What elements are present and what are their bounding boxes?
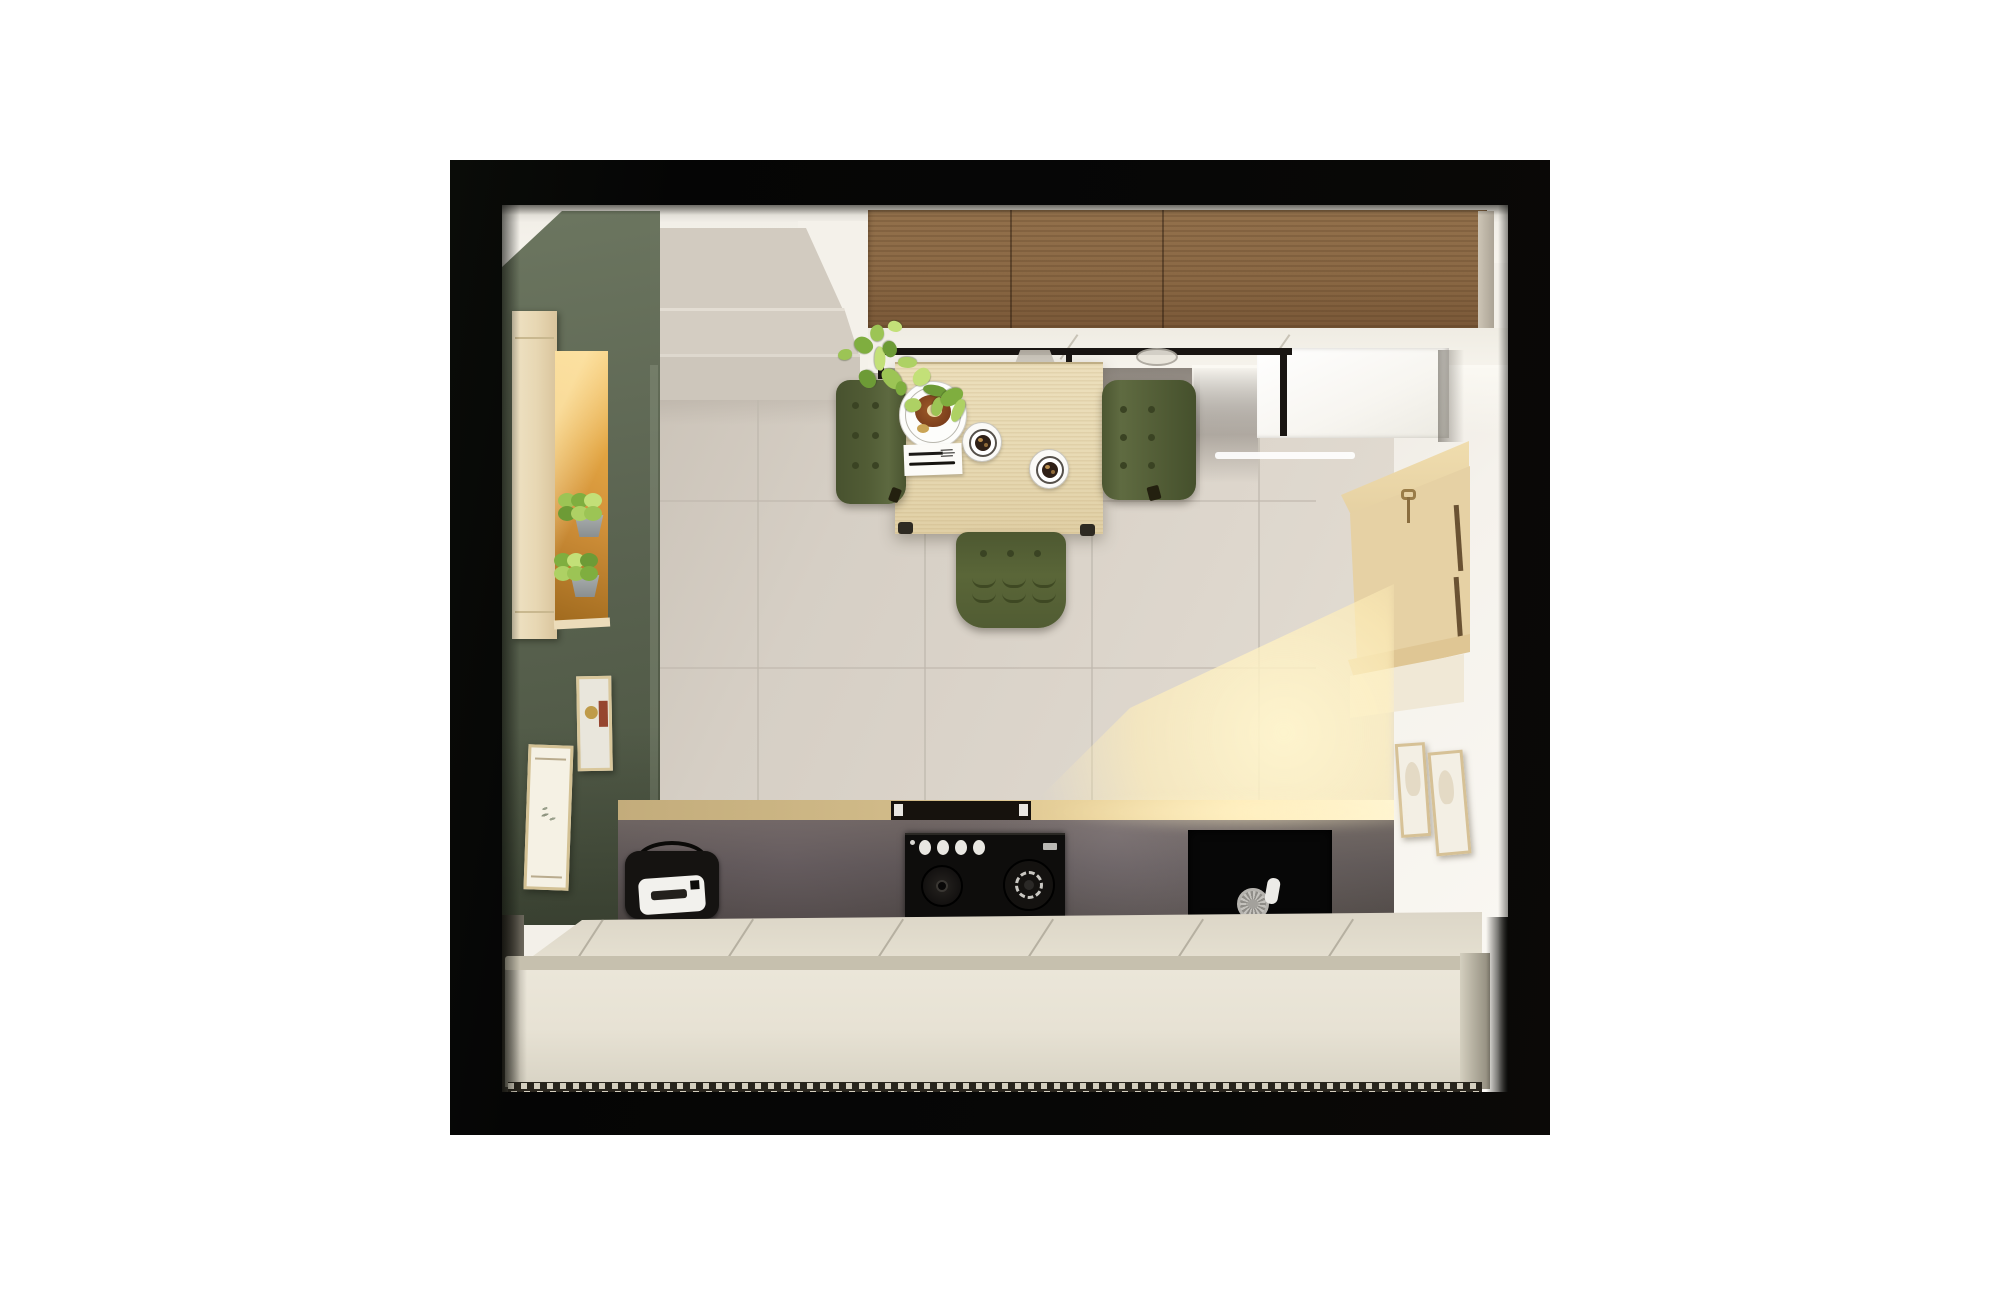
- burner-small: [921, 865, 963, 907]
- art-figure: [1437, 770, 1455, 805]
- dining-chair-right: [1102, 380, 1196, 500]
- art-line: [531, 875, 562, 878]
- cooktop-knob: [919, 840, 931, 855]
- toaster-lid: [638, 875, 706, 916]
- chair-tuft-button: [1148, 462, 1155, 469]
- vine-plant: [828, 301, 978, 441]
- plinth-light-line: [1215, 452, 1355, 459]
- chair-tuft-button: [1148, 434, 1155, 441]
- cooktop-knob: [937, 840, 949, 855]
- art-gold-circle: [585, 706, 598, 719]
- vent-clip: [1019, 804, 1028, 816]
- toaster-latch: [690, 880, 700, 890]
- frame-shadow-top: [502, 205, 1508, 215]
- vine-leaf: [894, 381, 908, 397]
- coffee-topping: [1045, 465, 1050, 469]
- art-plant-sketch: [533, 797, 563, 832]
- drain-core: [1248, 899, 1258, 909]
- coffee-topping: [978, 438, 983, 442]
- tap-handle: [1264, 877, 1281, 905]
- pendant-lamp-shade: [1136, 348, 1178, 366]
- chair-tuft-fold: [972, 593, 996, 603]
- chair-tuft-button: [1120, 406, 1127, 413]
- herb-leaves: [580, 566, 598, 581]
- cabinet-door-seam: [1010, 210, 1012, 334]
- chair-tuft-fold: [972, 578, 996, 588]
- chair-tuft-fold: [1032, 578, 1056, 588]
- worktop-sun-glow: [1042, 790, 1402, 834]
- art-figure: [1404, 762, 1421, 797]
- napkin-with-cutlery: [903, 443, 962, 476]
- vine-leaf: [857, 367, 878, 390]
- chair-tuft-button: [1034, 550, 1041, 557]
- vine-leaf: [868, 323, 886, 342]
- frame-shadow-right: [1498, 205, 1508, 1092]
- cabinet-door-seam: [1162, 210, 1164, 334]
- key-stem: [1407, 497, 1410, 523]
- burner-cap: [936, 880, 948, 892]
- art-line: [535, 757, 566, 760]
- base-cabinet-front: [505, 970, 1482, 1087]
- wall-art-botanical: [523, 744, 573, 890]
- chair-tuft-button: [1007, 550, 1014, 557]
- chair-tuft-button: [1148, 406, 1155, 413]
- cabinet-end-panel: [1478, 211, 1494, 337]
- chair-tuft-button: [1120, 434, 1127, 441]
- toaster: [625, 843, 719, 919]
- chair-tuft-fold: [1002, 578, 1026, 588]
- door-seam: [515, 611, 554, 613]
- fork-icon: [909, 452, 943, 456]
- coffee-cup: [1029, 449, 1069, 489]
- art-red-rectangle: [599, 701, 608, 727]
- table-leg: [1080, 524, 1095, 536]
- burner-large: [1003, 859, 1055, 911]
- dining-chair-bottom: [956, 532, 1066, 628]
- cooktop-knob: [973, 840, 985, 855]
- tile-grout-horizontal: [616, 667, 1316, 669]
- chair-tuft-fold: [1002, 593, 1026, 603]
- door-seam: [515, 337, 554, 339]
- cooktop-indicator: [910, 840, 915, 845]
- frame-shadow-left: [502, 205, 520, 1092]
- table-leg: [898, 522, 913, 534]
- rail-post: [1280, 348, 1287, 436]
- herb-leaves: [584, 506, 602, 521]
- burner-cap: [1024, 880, 1034, 890]
- fork-tine: [941, 455, 953, 457]
- cooktop-logo: [1043, 843, 1057, 850]
- black-sink: [1188, 830, 1332, 920]
- coffee: [1042, 462, 1058, 478]
- chair-tuft-fold: [1032, 593, 1056, 603]
- wall-art-abstract: [576, 676, 613, 772]
- chair-tuft-button: [872, 462, 879, 469]
- render-canvas: [0, 0, 2000, 1300]
- vine-leaf: [897, 356, 917, 370]
- extractor-vent: [891, 801, 1031, 820]
- chair-tuft-button: [852, 462, 859, 469]
- fork-tine: [943, 452, 955, 454]
- toaster-slot: [651, 889, 688, 900]
- vent-clip: [894, 804, 903, 816]
- coffee-topping: [1051, 470, 1055, 474]
- fork-tine: [941, 449, 953, 451]
- kitchen-room-view: [502, 205, 1508, 1092]
- tile-grout-vertical: [757, 355, 759, 823]
- unit-side-shadow: [1438, 350, 1464, 442]
- cooktop-knob: [955, 840, 967, 855]
- coffee-topping: [984, 443, 988, 447]
- chair-tuft-button: [980, 550, 987, 557]
- vine-leaf: [886, 319, 903, 335]
- gas-cooktop: [905, 833, 1065, 917]
- plinth-vent-grille: [508, 1082, 1482, 1092]
- chair-tuft-button: [1120, 462, 1127, 469]
- vine-leaf: [903, 395, 924, 415]
- vine-leaf: [838, 349, 852, 360]
- toaster-body: [625, 851, 719, 919]
- knife-icon: [909, 461, 955, 466]
